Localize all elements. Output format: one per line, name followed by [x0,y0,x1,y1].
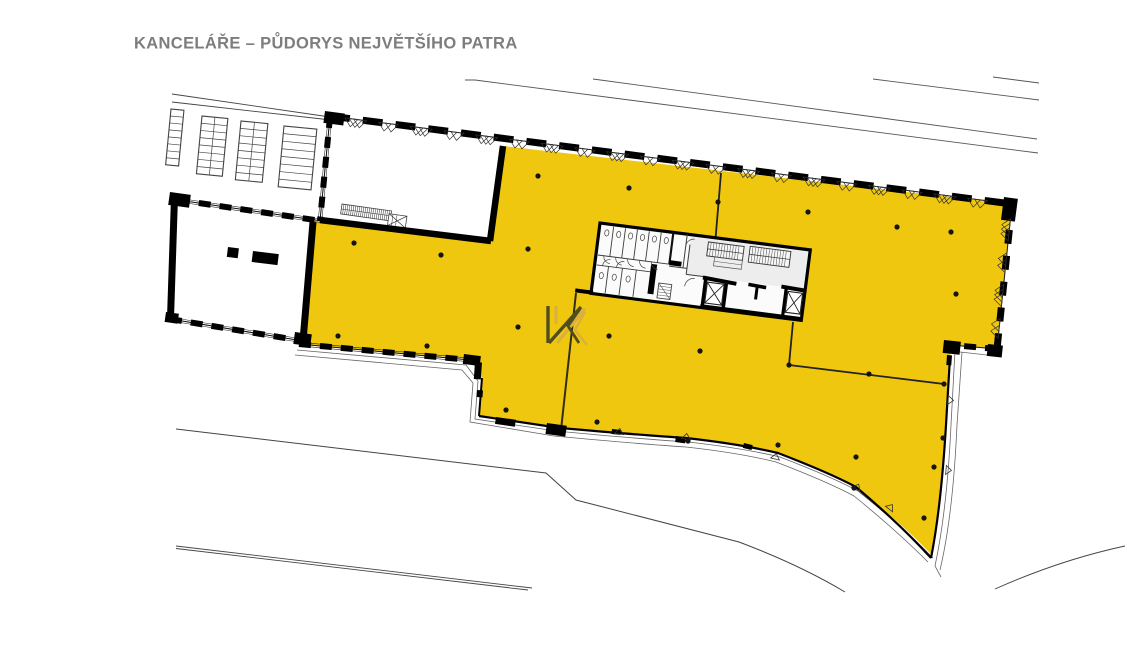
svg-text:KANCELÁŘE – PŮDORYS NEJVĚTŠÍHO: KANCELÁŘE – PŮDORYS NEJVĚTŠÍHO PATRA [134,33,518,53]
